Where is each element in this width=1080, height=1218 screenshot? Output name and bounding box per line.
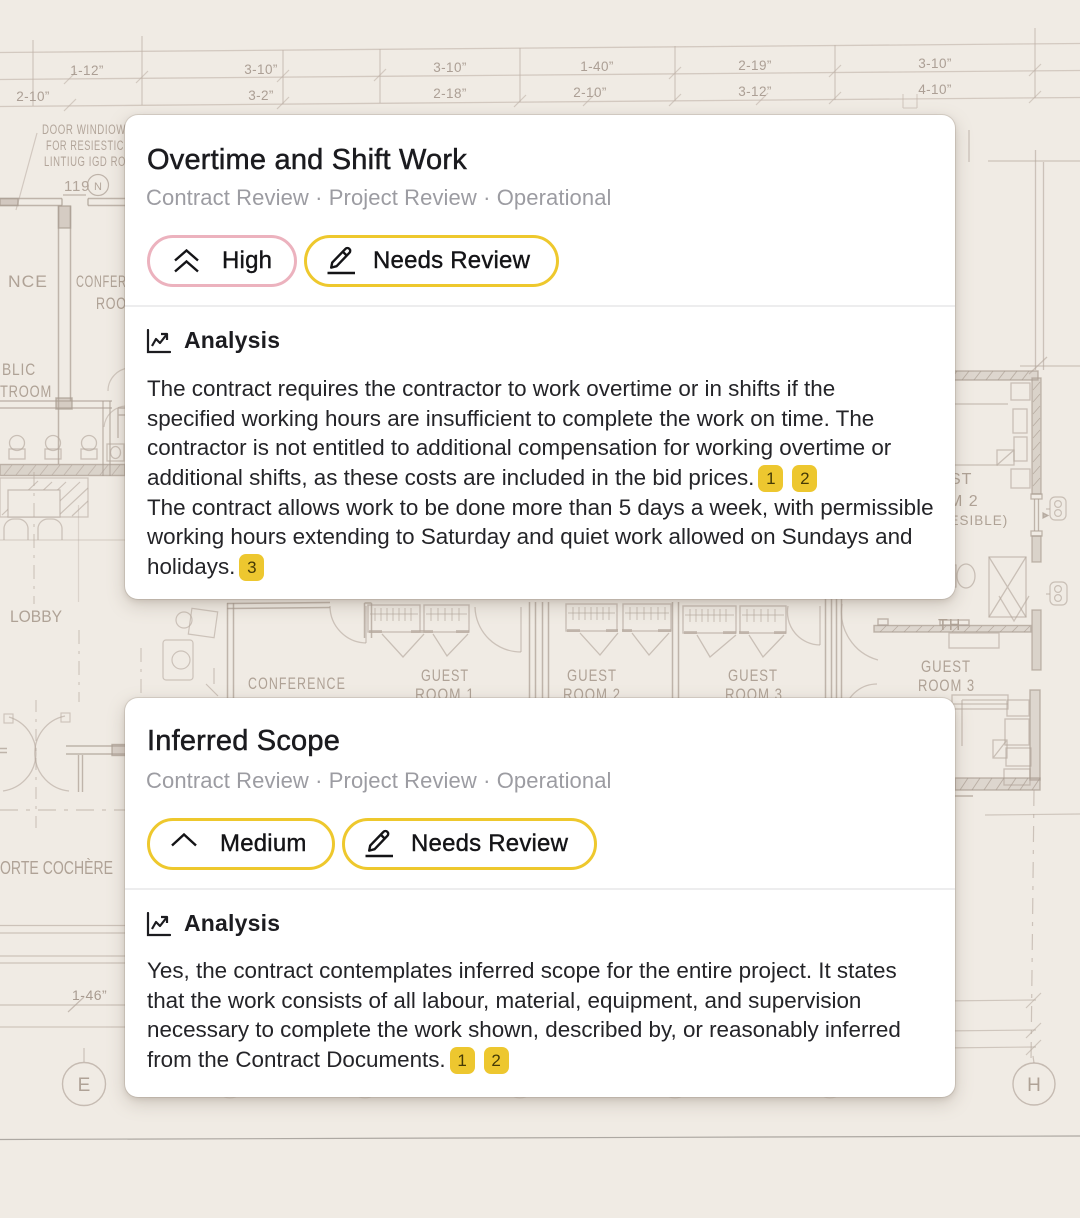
svg-text:TH: TH (938, 617, 961, 634)
svg-text:3-10”: 3-10” (918, 56, 952, 71)
svg-text:DOOR WINDIOW: DOOR WINDIOW (42, 122, 126, 137)
svg-text:3-12”: 3-12” (738, 84, 772, 99)
svg-text:ROOM 3: ROOM 3 (918, 677, 975, 695)
svg-text:2-19”: 2-19” (738, 58, 772, 73)
svg-text:GUEST: GUEST (421, 667, 469, 685)
svg-text:GUEST: GUEST (567, 667, 617, 685)
svg-text:GUEST: GUEST (921, 658, 971, 676)
svg-text:2-10”: 2-10” (573, 85, 607, 100)
svg-text:119: 119 (64, 178, 90, 195)
svg-text:ORTE COCHÈRE: ORTE COCHÈRE (0, 858, 113, 878)
svg-text:1-46”: 1-46” (72, 987, 107, 1003)
svg-text:FOR RESIESTIC: FOR RESIESTIC (46, 138, 124, 153)
svg-text:1-40”: 1-40” (580, 59, 614, 74)
svg-text:2-10”: 2-10” (16, 89, 50, 104)
svg-text:CONFERENCE: CONFERENCE (248, 674, 346, 693)
svg-text:3-10”: 3-10” (433, 60, 467, 75)
svg-text:H: H (1027, 1075, 1041, 1096)
svg-text:N: N (94, 181, 102, 193)
svg-text:3-10”: 3-10” (244, 62, 278, 77)
svg-text:2-18”: 2-18” (433, 86, 467, 101)
svg-text:NCE: NCE (8, 273, 48, 291)
svg-text:E: E (78, 1075, 91, 1096)
svg-text:LOBBY: LOBBY (10, 607, 62, 626)
svg-text:3-2”: 3-2” (248, 88, 274, 103)
svg-text:TROOM: TROOM (0, 383, 52, 401)
svg-text:1-12”: 1-12” (70, 63, 104, 78)
svg-text:LINTIUG IGD RO: LINTIUG IGD RO (44, 154, 126, 169)
svg-text:GUEST: GUEST (728, 667, 778, 685)
svg-text:BLIC: BLIC (2, 361, 36, 379)
svg-text:4-10”: 4-10” (918, 82, 952, 97)
